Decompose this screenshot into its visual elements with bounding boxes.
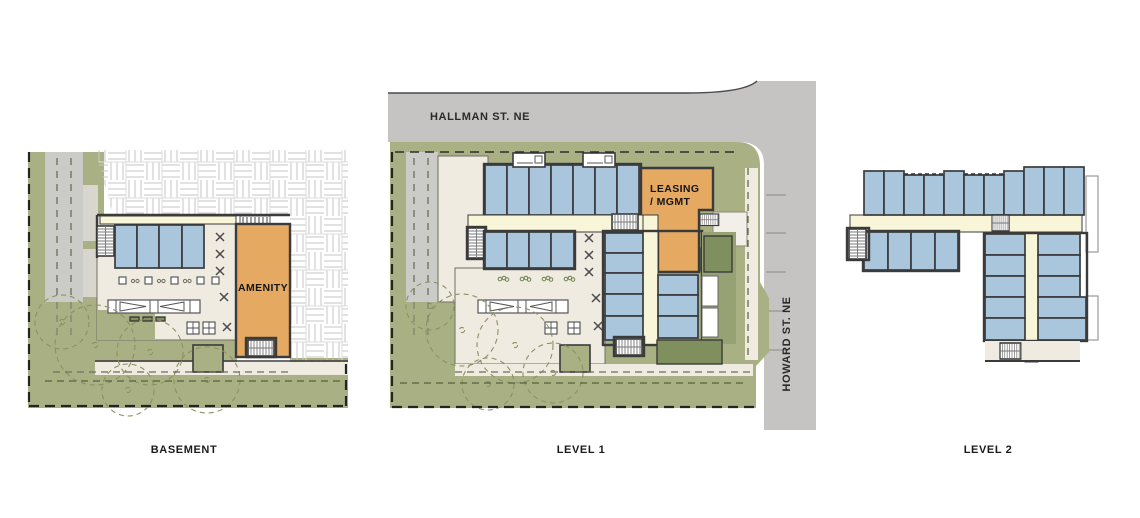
level1-entry-vestibule	[560, 345, 590, 372]
unit	[964, 175, 984, 215]
unit	[1044, 167, 1064, 215]
unit	[507, 232, 529, 268]
planter-icon	[171, 277, 178, 284]
unit	[1024, 167, 1044, 215]
howard-sidewalk	[745, 168, 758, 360]
unit-patio	[702, 276, 718, 306]
basement-title: BASEMENT	[151, 444, 218, 456]
bike-rack-icon	[243, 217, 267, 223]
level2-corridor	[850, 215, 1082, 232]
unit	[944, 171, 964, 215]
wing-bottom-floor	[985, 341, 1080, 361]
unit	[984, 175, 1004, 215]
stair-icon	[849, 229, 866, 259]
level1-title: LEVEL 1	[557, 444, 606, 456]
unit	[658, 275, 698, 295]
unit	[884, 171, 904, 215]
unit	[551, 232, 574, 268]
stair-icon	[468, 228, 485, 258]
level1-plan: HALLMAN ST. NE HOWARD ST. NE LEASING / M…	[388, 81, 816, 456]
unit	[985, 276, 1025, 297]
level2-plan: LEVEL 2	[847, 167, 1098, 456]
unit-patio	[702, 308, 718, 337]
basement-driveway	[45, 152, 83, 302]
unit	[904, 175, 924, 215]
unit	[573, 165, 595, 215]
basement-courtyard-green-notch	[97, 310, 155, 340]
unit	[935, 232, 958, 270]
unit	[985, 297, 1025, 318]
unit	[605, 233, 643, 253]
leasing-label-line2: / MGMT	[650, 196, 690, 208]
level2-title: LEVEL 2	[964, 444, 1013, 456]
unit	[159, 225, 182, 268]
entry-canopy	[513, 153, 545, 167]
unit	[529, 165, 551, 215]
unit	[595, 165, 617, 215]
unit	[617, 165, 639, 215]
bench-planter	[108, 300, 200, 313]
unit	[658, 295, 698, 316]
planter-icon	[212, 277, 219, 284]
basement-plan: AMENITY BASEMENT	[28, 150, 348, 456]
unit	[864, 171, 884, 215]
hallman-street-label: HALLMAN ST. NE	[430, 111, 530, 123]
unit	[605, 294, 643, 316]
unit	[924, 175, 944, 215]
unit	[529, 232, 551, 268]
parking-pad	[83, 249, 98, 297]
stair-icon	[616, 339, 642, 355]
stair-icon	[612, 214, 638, 230]
basement-north-corridor	[100, 216, 236, 224]
unit	[115, 225, 137, 268]
unit	[888, 232, 911, 270]
east-wing-corridor	[643, 215, 658, 345]
amenity-label: AMENITY	[238, 282, 288, 294]
stair-icon	[248, 340, 274, 356]
site-plan-sheet: AMENITY BASEMENT	[0, 0, 1140, 518]
shrub-planter	[657, 340, 722, 364]
unit	[911, 232, 935, 270]
stair-icon	[1000, 343, 1021, 359]
parking-pad	[83, 185, 98, 241]
unit	[182, 225, 204, 268]
unit	[485, 232, 507, 268]
unit	[1038, 318, 1086, 340]
shrub-strip	[130, 317, 139, 321]
unit	[1038, 297, 1086, 318]
stair-icon	[97, 226, 114, 256]
entry-canopy	[583, 153, 615, 167]
leasing-label-line1: LEASING	[650, 183, 699, 195]
planter-icon	[119, 277, 126, 284]
floor-plans-drawing: AMENITY BASEMENT	[0, 0, 1140, 518]
stair-icon	[992, 215, 1009, 231]
unit	[551, 165, 573, 215]
unit	[985, 234, 1025, 255]
unit	[485, 165, 507, 215]
howard-street-label: HOWARD ST. NE	[781, 296, 793, 391]
unit	[605, 273, 643, 294]
table-icon	[568, 322, 580, 334]
unit	[1038, 255, 1080, 276]
basement-landscape-south	[28, 374, 348, 408]
table-icon	[203, 322, 215, 334]
bench-planter	[478, 300, 568, 313]
unit	[1004, 171, 1024, 215]
unit	[1038, 234, 1080, 255]
unit	[605, 253, 643, 273]
unit	[864, 232, 888, 270]
unit	[507, 165, 529, 215]
level1-south-walk	[455, 364, 753, 376]
unit	[985, 255, 1025, 276]
street-curb-line	[388, 81, 757, 93]
planter-icon	[145, 277, 152, 284]
shrub-planter	[704, 236, 732, 272]
unit	[137, 225, 159, 268]
level1-driveway	[406, 152, 438, 302]
unit	[1064, 167, 1084, 215]
planter-icon	[197, 277, 204, 284]
unit	[658, 316, 698, 338]
unit	[1038, 276, 1080, 297]
table-icon	[187, 322, 199, 334]
stair-icon	[700, 214, 719, 226]
unit	[985, 318, 1025, 340]
